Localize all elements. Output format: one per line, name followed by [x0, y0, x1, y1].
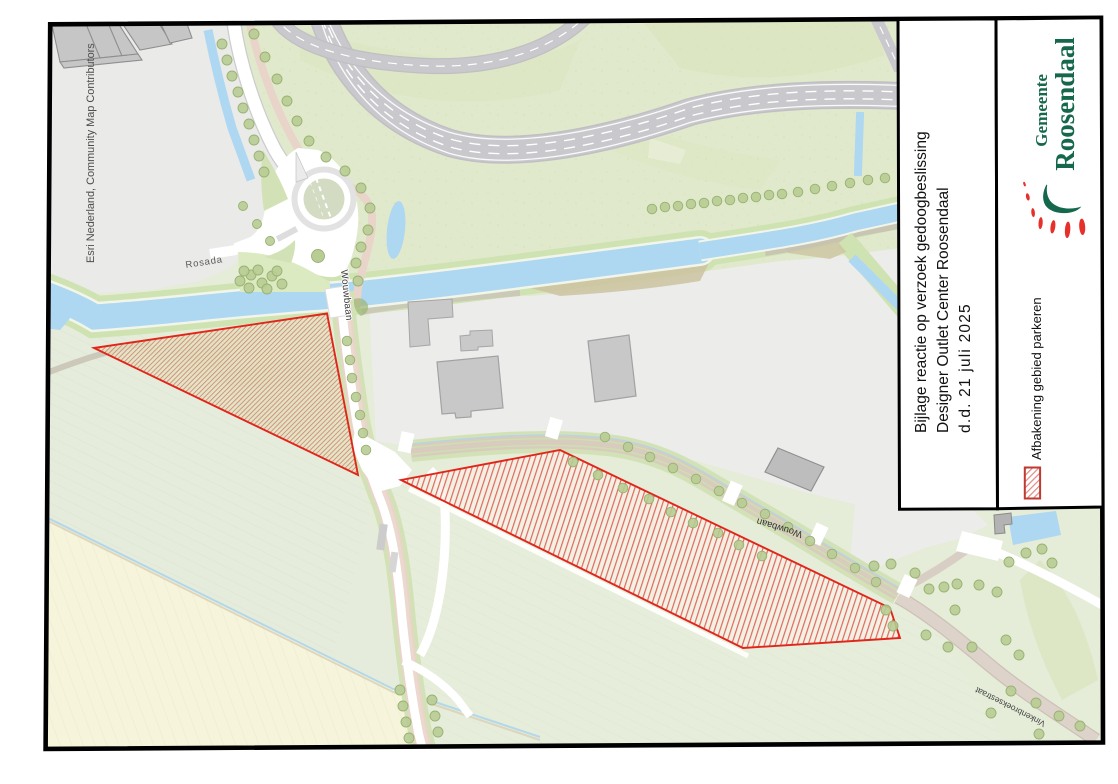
- svg-text:Bijlage reactie op verzoek ged: Bijlage reactie op verzoek gedoogbesliss…: [913, 131, 930, 433]
- svg-text:Esri Nederland, Community Map: Esri Nederland, Community Map Contributo…: [85, 43, 97, 263]
- svg-text:d.d. 21 juli 2025: d.d. 21 juli 2025: [957, 303, 974, 433]
- svg-text:Afbakening gebied parkeren: Afbakening gebied parkeren: [1029, 297, 1044, 460]
- svg-text:Gemeente: Gemeente: [1032, 74, 1051, 147]
- svg-text:Roosendaal: Roosendaal: [1050, 37, 1080, 171]
- svg-text:Designer Outlet Center Roosend: Designer Outlet Center Roosendaal: [935, 187, 952, 433]
